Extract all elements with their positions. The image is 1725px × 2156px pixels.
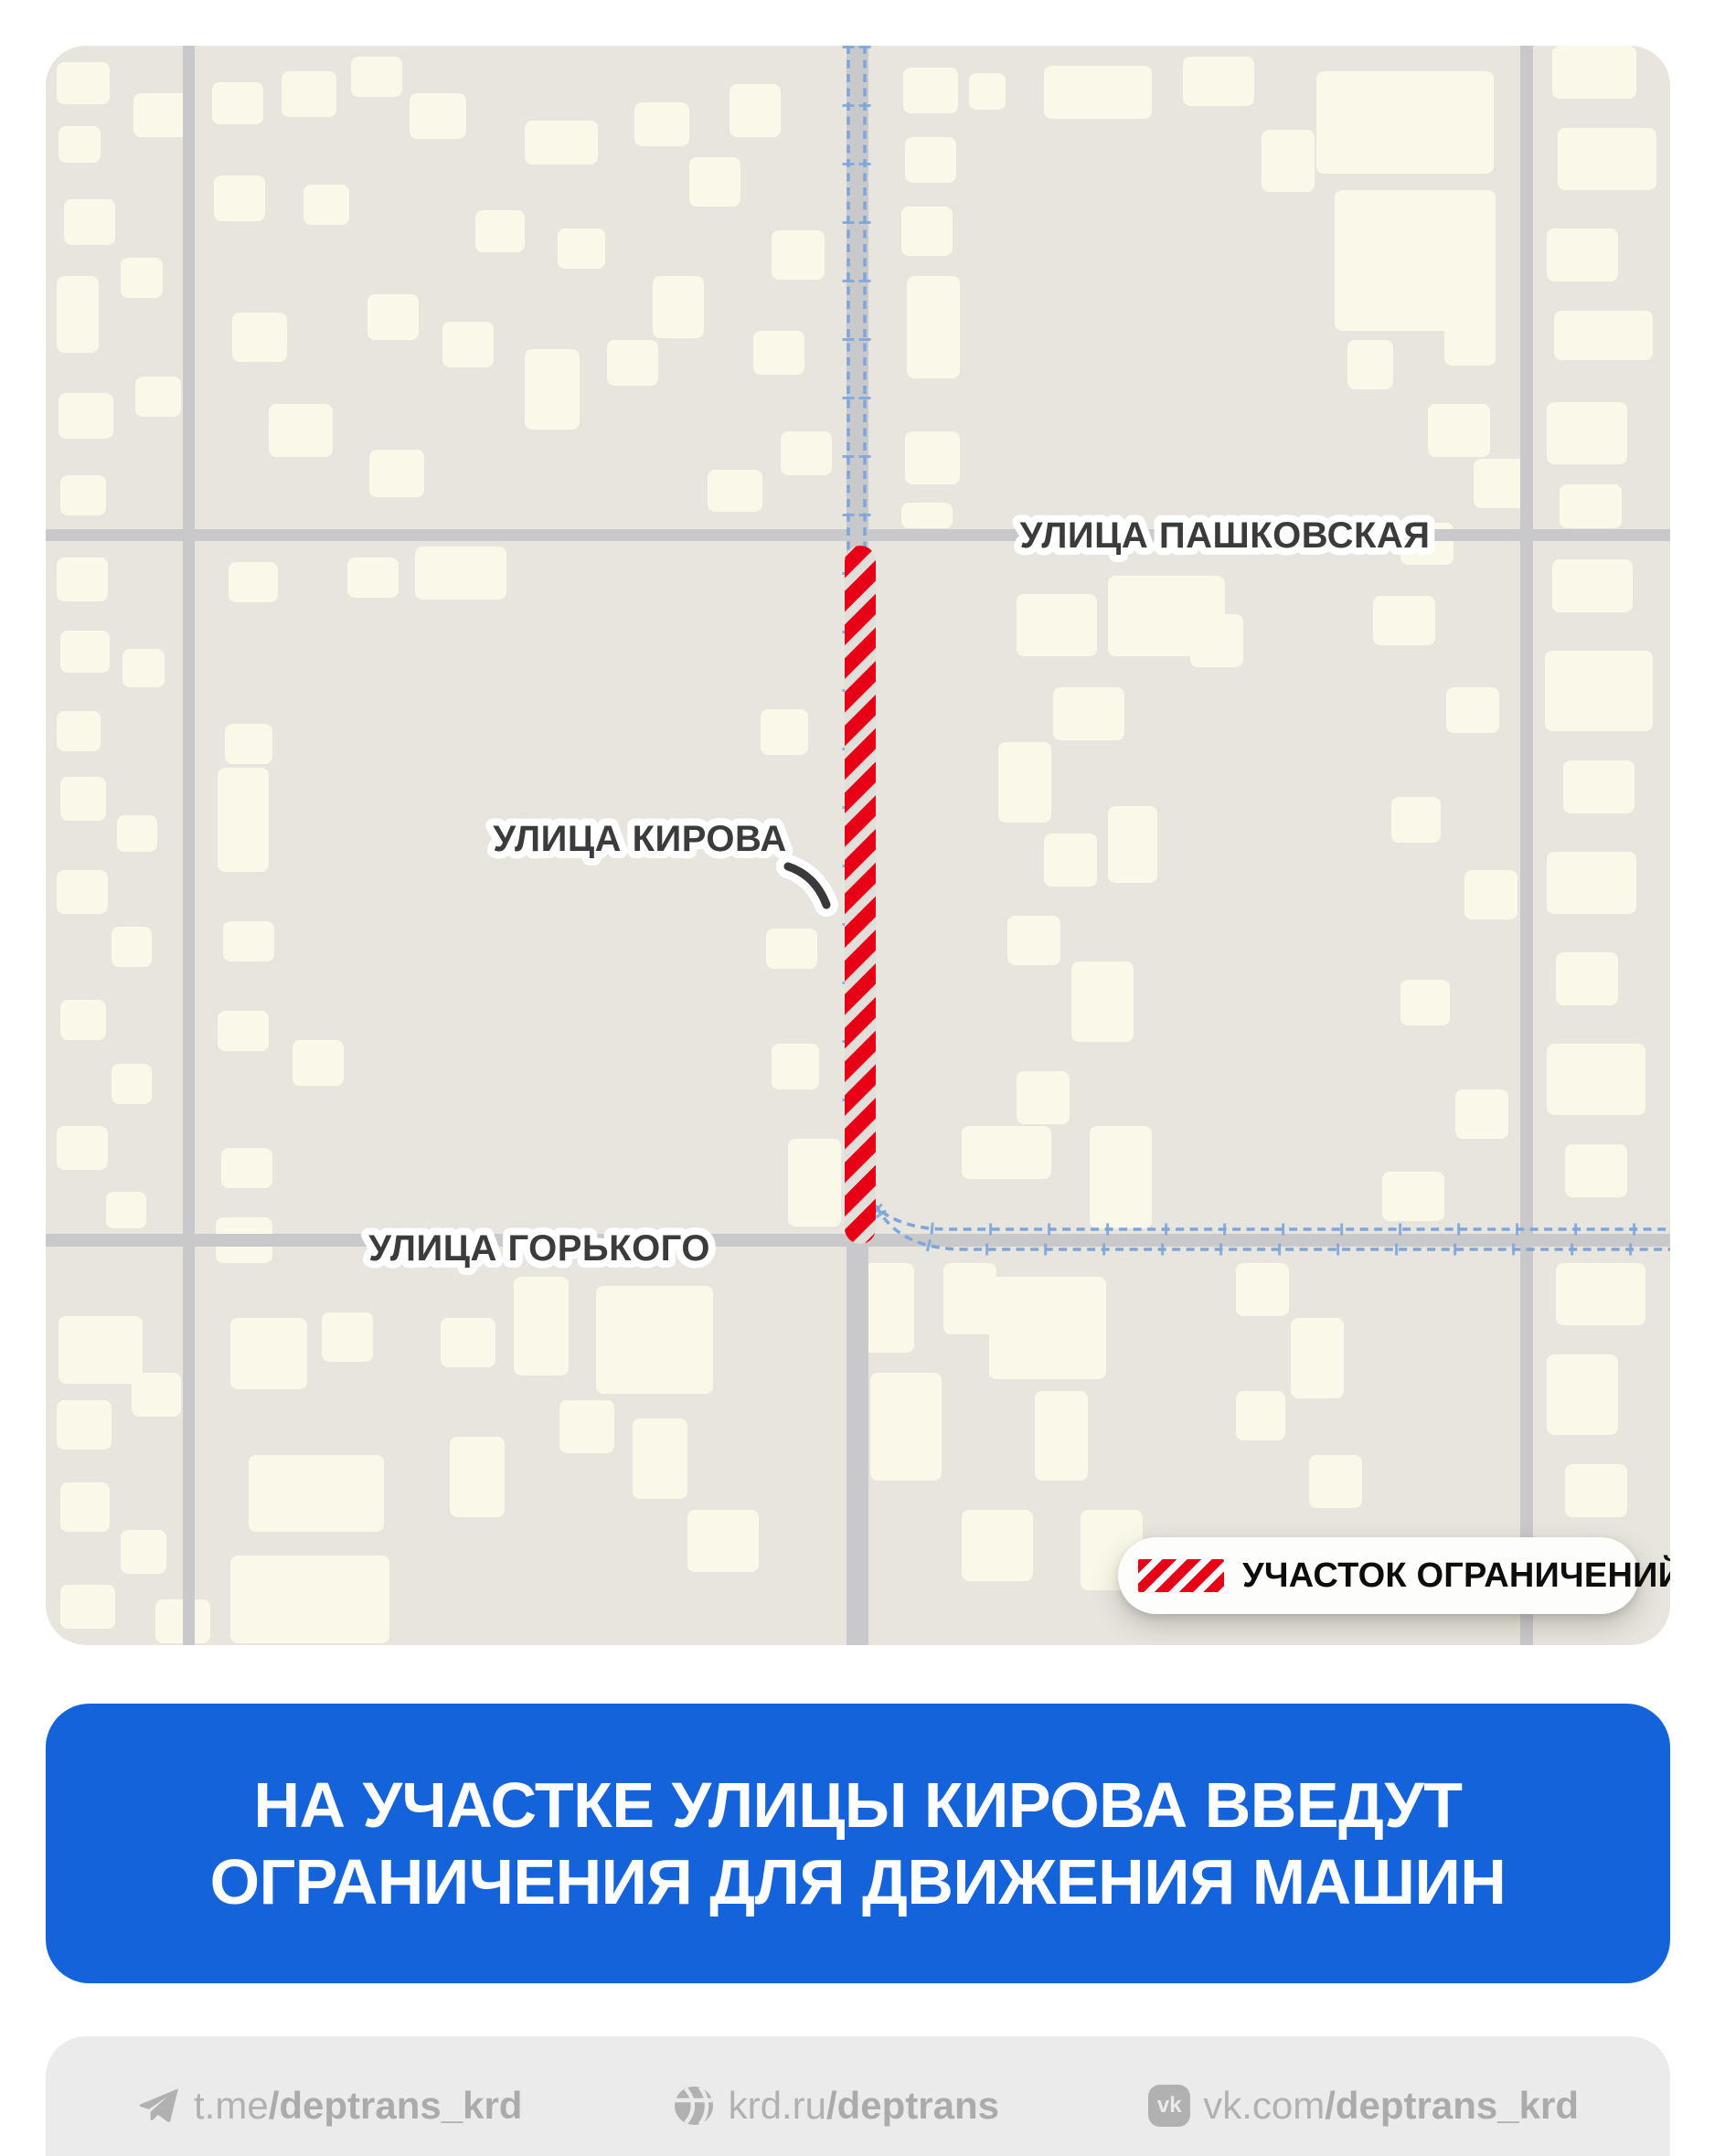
- telegram-link[interactable]: t.me/deptrans_krd: [137, 2084, 522, 2128]
- legend-label: УЧАСТОК ОГРАНИЧЕНИЙ: [1242, 1556, 1670, 1596]
- headline-banner: НА УЧАСТКЕ УЛИЦЫ КИРОВА ВВЕДУТ ОГРАНИЧЕН…: [46, 1704, 1670, 1983]
- legend: УЧАСТОК ОГРАНИЧЕНИЙ: [1118, 1537, 1639, 1614]
- vk-link[interactable]: vk vk.com/deptrans_krd: [1148, 2084, 1579, 2128]
- krd-link[interactable]: krd.ru/deptrans: [672, 2084, 999, 2128]
- footer: t.me/deptrans_krd krd.ru/deptrans vk vk.…: [46, 2036, 1670, 2156]
- street-label-pashkovskaya: УЛИЦА ПАШКОВСКАЯ: [1019, 515, 1430, 556]
- map-canvas: УЛИЦА ПАШКОВСКАЯ УЛИЦА КИРОВА УЛИЦА ГОРЬ…: [46, 46, 1670, 1645]
- headline-line-2: ОГРАНИЧЕНИЯ ДЛЯ ДВИЖЕНИЯ МАШИН: [210, 1843, 1507, 1920]
- vk-link-text: vk.com/deptrans_krd: [1203, 2084, 1579, 2128]
- krd-icon: [672, 2084, 716, 2128]
- map: УЛИЦА ПАШКОВСКАЯ УЛИЦА КИРОВА УЛИЦА ГОРЬ…: [46, 46, 1670, 1645]
- headline-line-1: НА УЧАСТКЕ УЛИЦЫ КИРОВА ВВЕДУТ: [253, 1767, 1462, 1843]
- street-label-gorkogo: УЛИЦА ГОРЬКОГО: [368, 1228, 710, 1269]
- restricted-swatch-icon: [1138, 1559, 1224, 1592]
- telegram-icon: [137, 2084, 181, 2128]
- street-label-kirova: УЛИЦА КИРОВА: [493, 819, 787, 859]
- post-image: УЛИЦА ПАШКОВСКАЯ УЛИЦА КИРОВА УЛИЦА ГОРЬ…: [0, 0, 1725, 2156]
- krd-link-text: krd.ru/deptrans: [729, 2084, 999, 2128]
- vk-icon: vk: [1148, 2085, 1190, 2127]
- telegram-link-text: t.me/deptrans_krd: [194, 2084, 522, 2128]
